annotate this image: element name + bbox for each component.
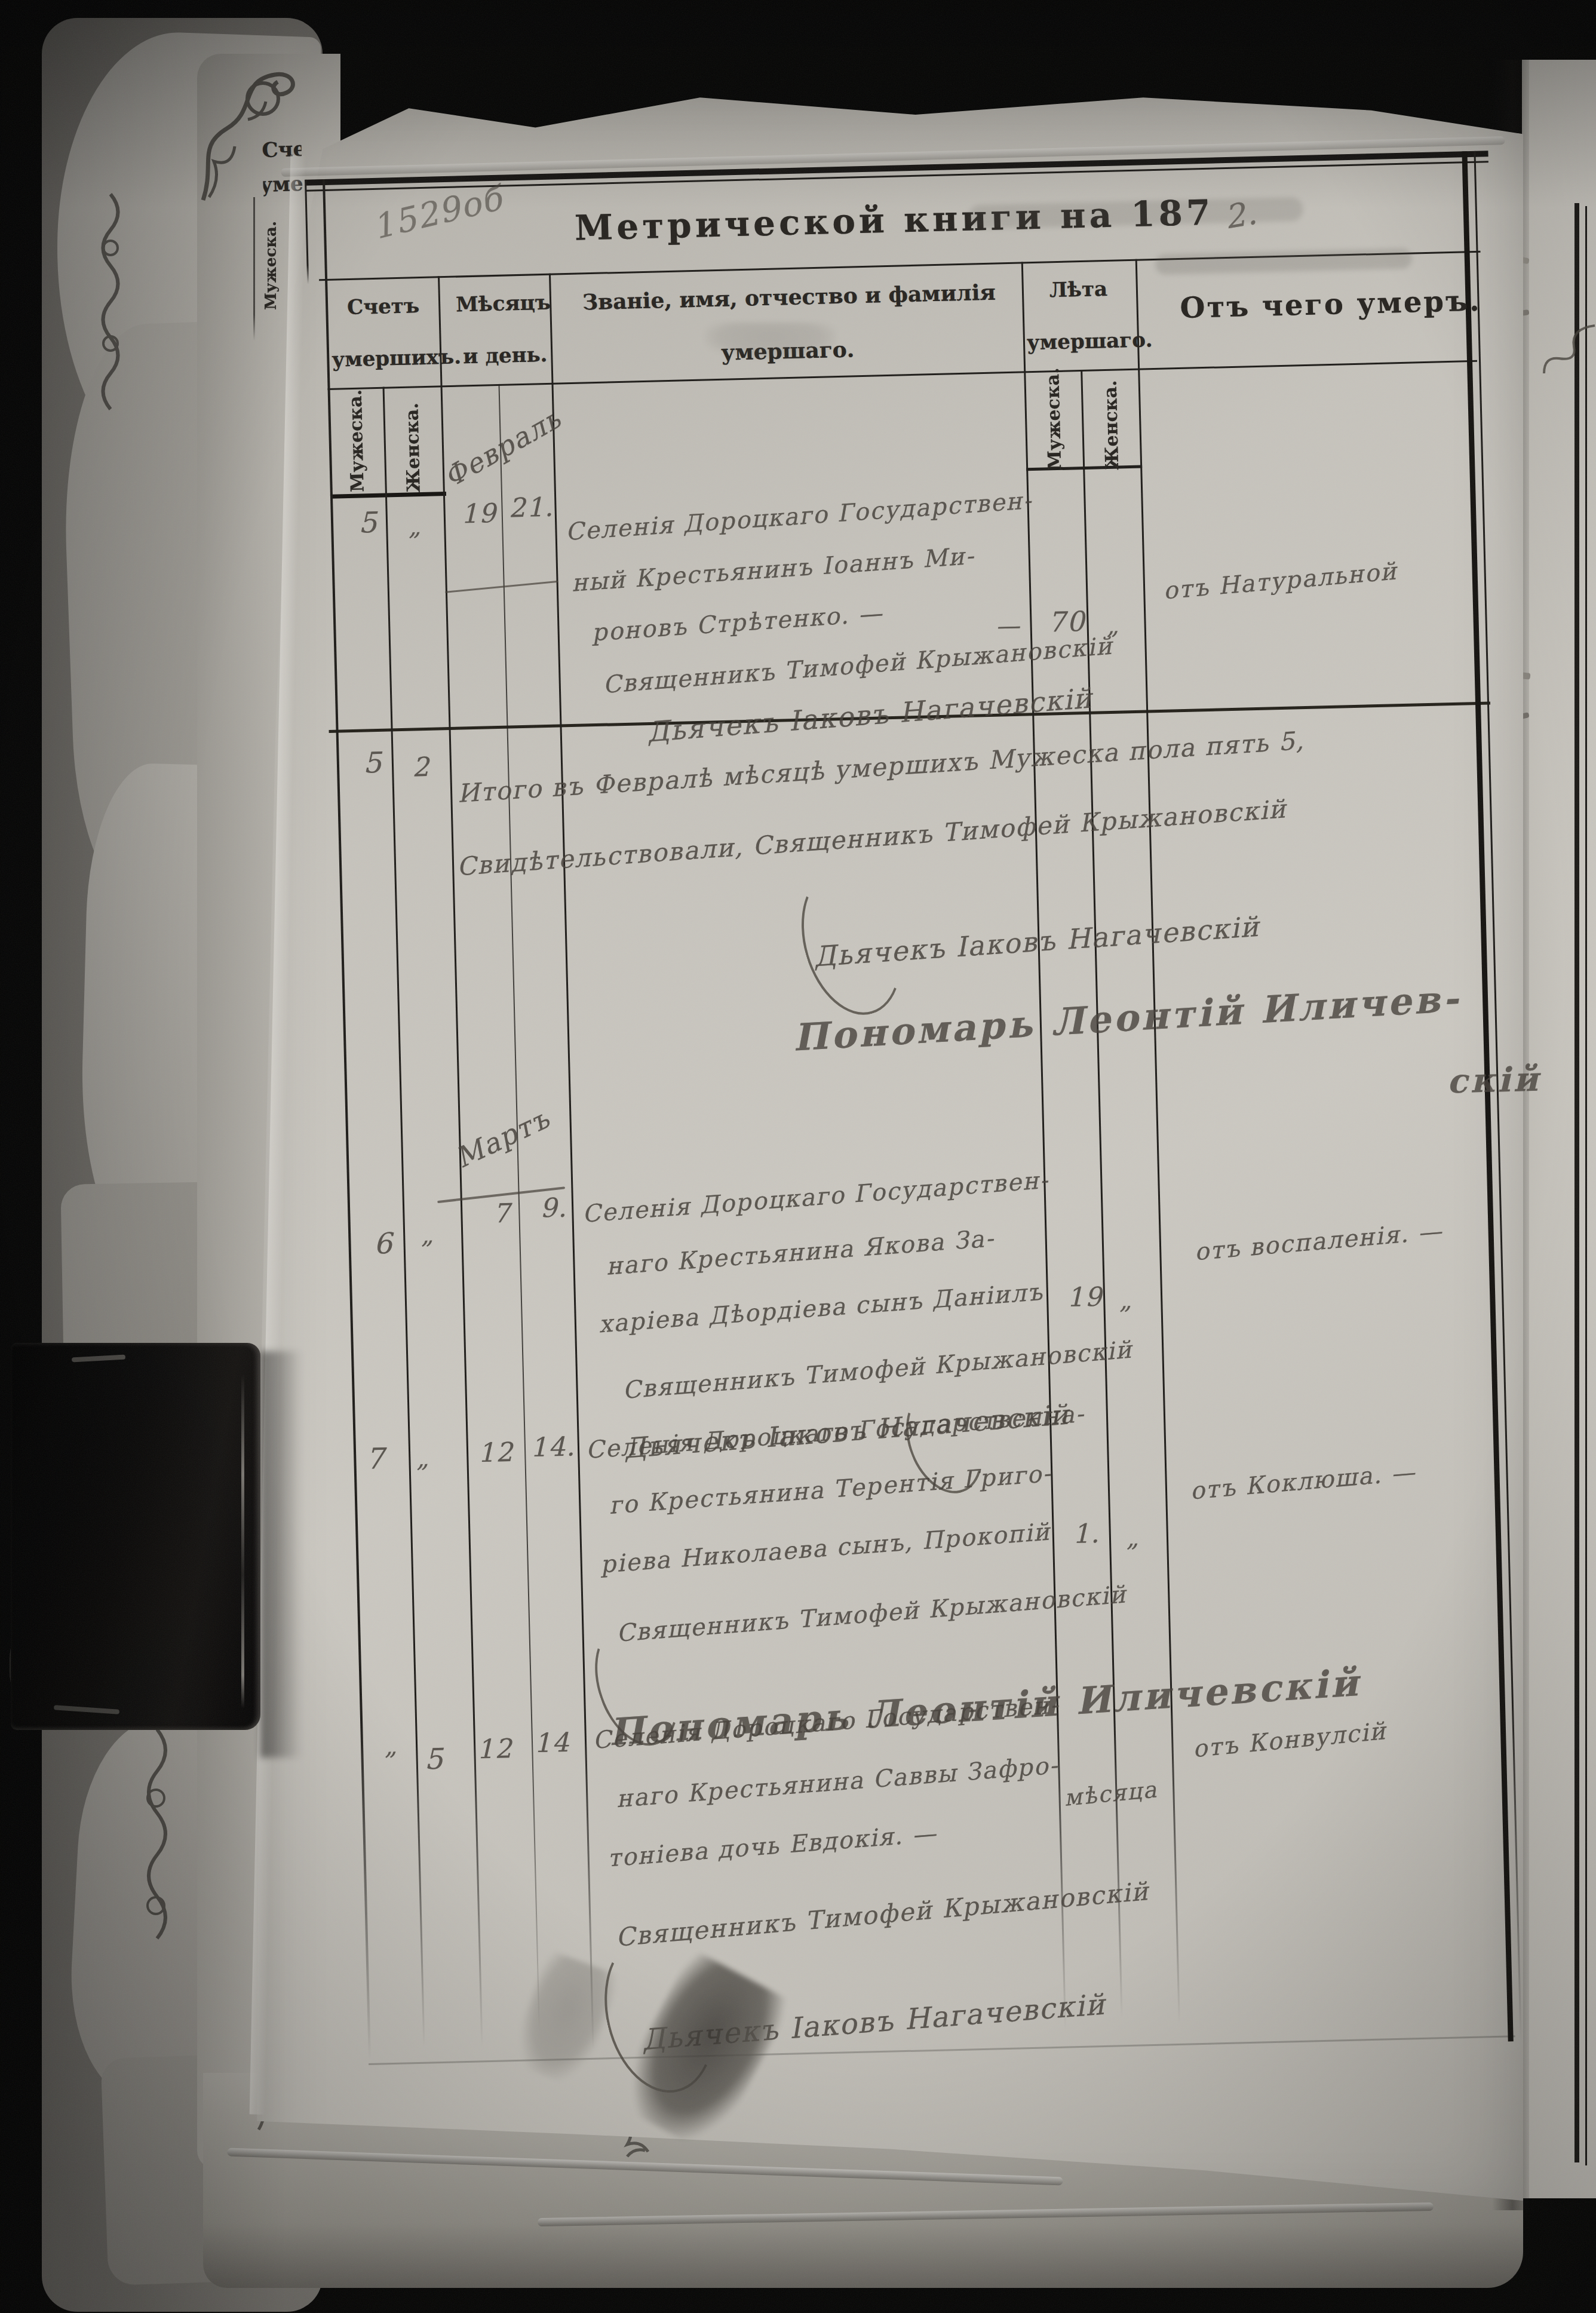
entry-no-female: „ (421, 1221, 435, 1249)
faint-smudge (705, 323, 836, 358)
entry-text: роновъ Стрѣтенко. — (591, 599, 884, 646)
entry-age-dash: — (995, 612, 1021, 640)
entry-text: Селенія Дороцкаго Государствен- (581, 1166, 1049, 1228)
entry-cause: отъ Конвулсій (1192, 1717, 1388, 1762)
facing-page-border (1574, 203, 1579, 2162)
column-rule (1135, 259, 1180, 2024)
total-no-female: 2 (412, 751, 430, 783)
archival-photo: Счетъ умершихъ. Мужеска. (0, 0, 1596, 2313)
entry-day-event: 7 (493, 1198, 511, 1229)
subheader-female: Женска. (1100, 377, 1123, 470)
sexton-signature: скій (1447, 1059, 1542, 1101)
entry-no-female: 5 (424, 1742, 444, 1776)
entry-day-event: 12 (477, 1733, 513, 1764)
month-label-february: Февраль (438, 402, 567, 493)
header-age: Лѣта (1049, 277, 1107, 302)
entry-age-male: 70 (1048, 605, 1086, 639)
entry-no-male: 5 (358, 505, 378, 539)
entry-age-written: мѣсяца (1063, 1776, 1159, 1811)
total-witness-text: Свидѣтельствовали, Священникъ Тимофей Кр… (456, 794, 1288, 881)
subheader-male: Мужеска. (345, 396, 368, 492)
register-table: 1529об Метрической книги на 187 2. Счетъ… (323, 151, 1540, 2126)
entry-text: наго Крестьянина Саввы Зафро- (615, 1751, 1059, 1812)
priest-signature: Священникъ Тимофей Крыжановскій (615, 1580, 1127, 1647)
month-label-march: Мартъ (450, 1102, 555, 1174)
priest-signature: Священникъ Тимофей Крыжановскій (615, 1876, 1150, 1952)
entry-age-female: „ (1126, 1524, 1140, 1552)
total-no-male: 5 (363, 746, 383, 780)
header-cause: Отъ чего умеръ. (1180, 284, 1481, 324)
entry-cause: отъ Натуральной (1162, 557, 1398, 604)
header-date: Мѣсяцъ (456, 290, 551, 317)
header-count: умершихъ. (332, 344, 462, 371)
clerk-signature: Дьячекъ Іаковъ Нагачевскій (646, 682, 1094, 748)
entry-text: ный Крестьянинъ Іоаннъ Ми- (570, 542, 975, 597)
clipped-sublabel-fragment: Мужеска. (262, 221, 286, 323)
entry-no-male: „ (385, 1732, 399, 1760)
clip-body (11, 1343, 260, 1730)
subheader-male: Мужеска. (1042, 378, 1065, 471)
facing-page-border (1585, 206, 1587, 2165)
entry-text: наго Крестьянина Якова За- (605, 1224, 995, 1280)
header-count: Счетъ (347, 293, 420, 319)
entry-day-event: 19 (461, 498, 497, 529)
header-date: и день. (463, 342, 548, 368)
entry-text: го Крестьянина Терентія Григо- (608, 1459, 1052, 1519)
entry-text: тоніева дочь Евдокія. — (606, 1819, 938, 1872)
clip-shadow (260, 1351, 302, 1757)
header-name: Званіе, имя, отчество и фамилія (582, 280, 996, 315)
header-age: умершаго. (1027, 327, 1153, 354)
entry-no-female: „ (416, 1444, 431, 1473)
entry-text: харіева Дѣордіева сынъ Даніилъ (598, 1278, 1045, 1338)
entry-day-burial: 14. (530, 1431, 576, 1462)
entry-text: Селенія Дороцкаго Государственна- (585, 1400, 1085, 1464)
entry-age-male: 1. (1072, 1518, 1100, 1549)
priest-signature: Священникъ Тимофей Крыжановскій (622, 1336, 1134, 1404)
entry-text: Селенія Дороцкаго Государствен- (564, 486, 1033, 545)
entry-no-female: „ (409, 513, 423, 541)
entry-day-event: 12 (478, 1437, 514, 1468)
entry-day-burial: 9. (540, 1192, 568, 1223)
entry-no-male: 7 (366, 1441, 386, 1475)
border-ornament (90, 191, 131, 430)
pen-squiggle (1541, 320, 1596, 379)
entry-age-male: 19 (1066, 1281, 1103, 1312)
entry-day-burial: 14 (533, 1727, 570, 1758)
ink-bleed-through (1155, 248, 1412, 274)
underlying-rule (253, 197, 255, 340)
entry-cause: отъ Коклюша. — (1189, 1458, 1417, 1504)
total-text: Итого въ Февралѣ мѣсяцѣ умершихъ Мужеска… (456, 726, 1306, 808)
border-ornament (136, 1726, 178, 1989)
entry-age-female: „ (1119, 1286, 1134, 1314)
month-underline (445, 581, 558, 593)
entry-day-burial: 21. (508, 492, 554, 523)
entry-text: ріева Николаева сынъ, Прокопій (600, 1518, 1052, 1578)
clip-highlight (241, 1374, 244, 1708)
subheader-rule-count (330, 492, 446, 499)
entry-no-male: 6 (373, 1226, 394, 1260)
column-rule (383, 387, 425, 2047)
entry-cause: отъ воспаленія. — (1193, 1217, 1444, 1265)
subheader-female: Женска. (401, 397, 424, 493)
